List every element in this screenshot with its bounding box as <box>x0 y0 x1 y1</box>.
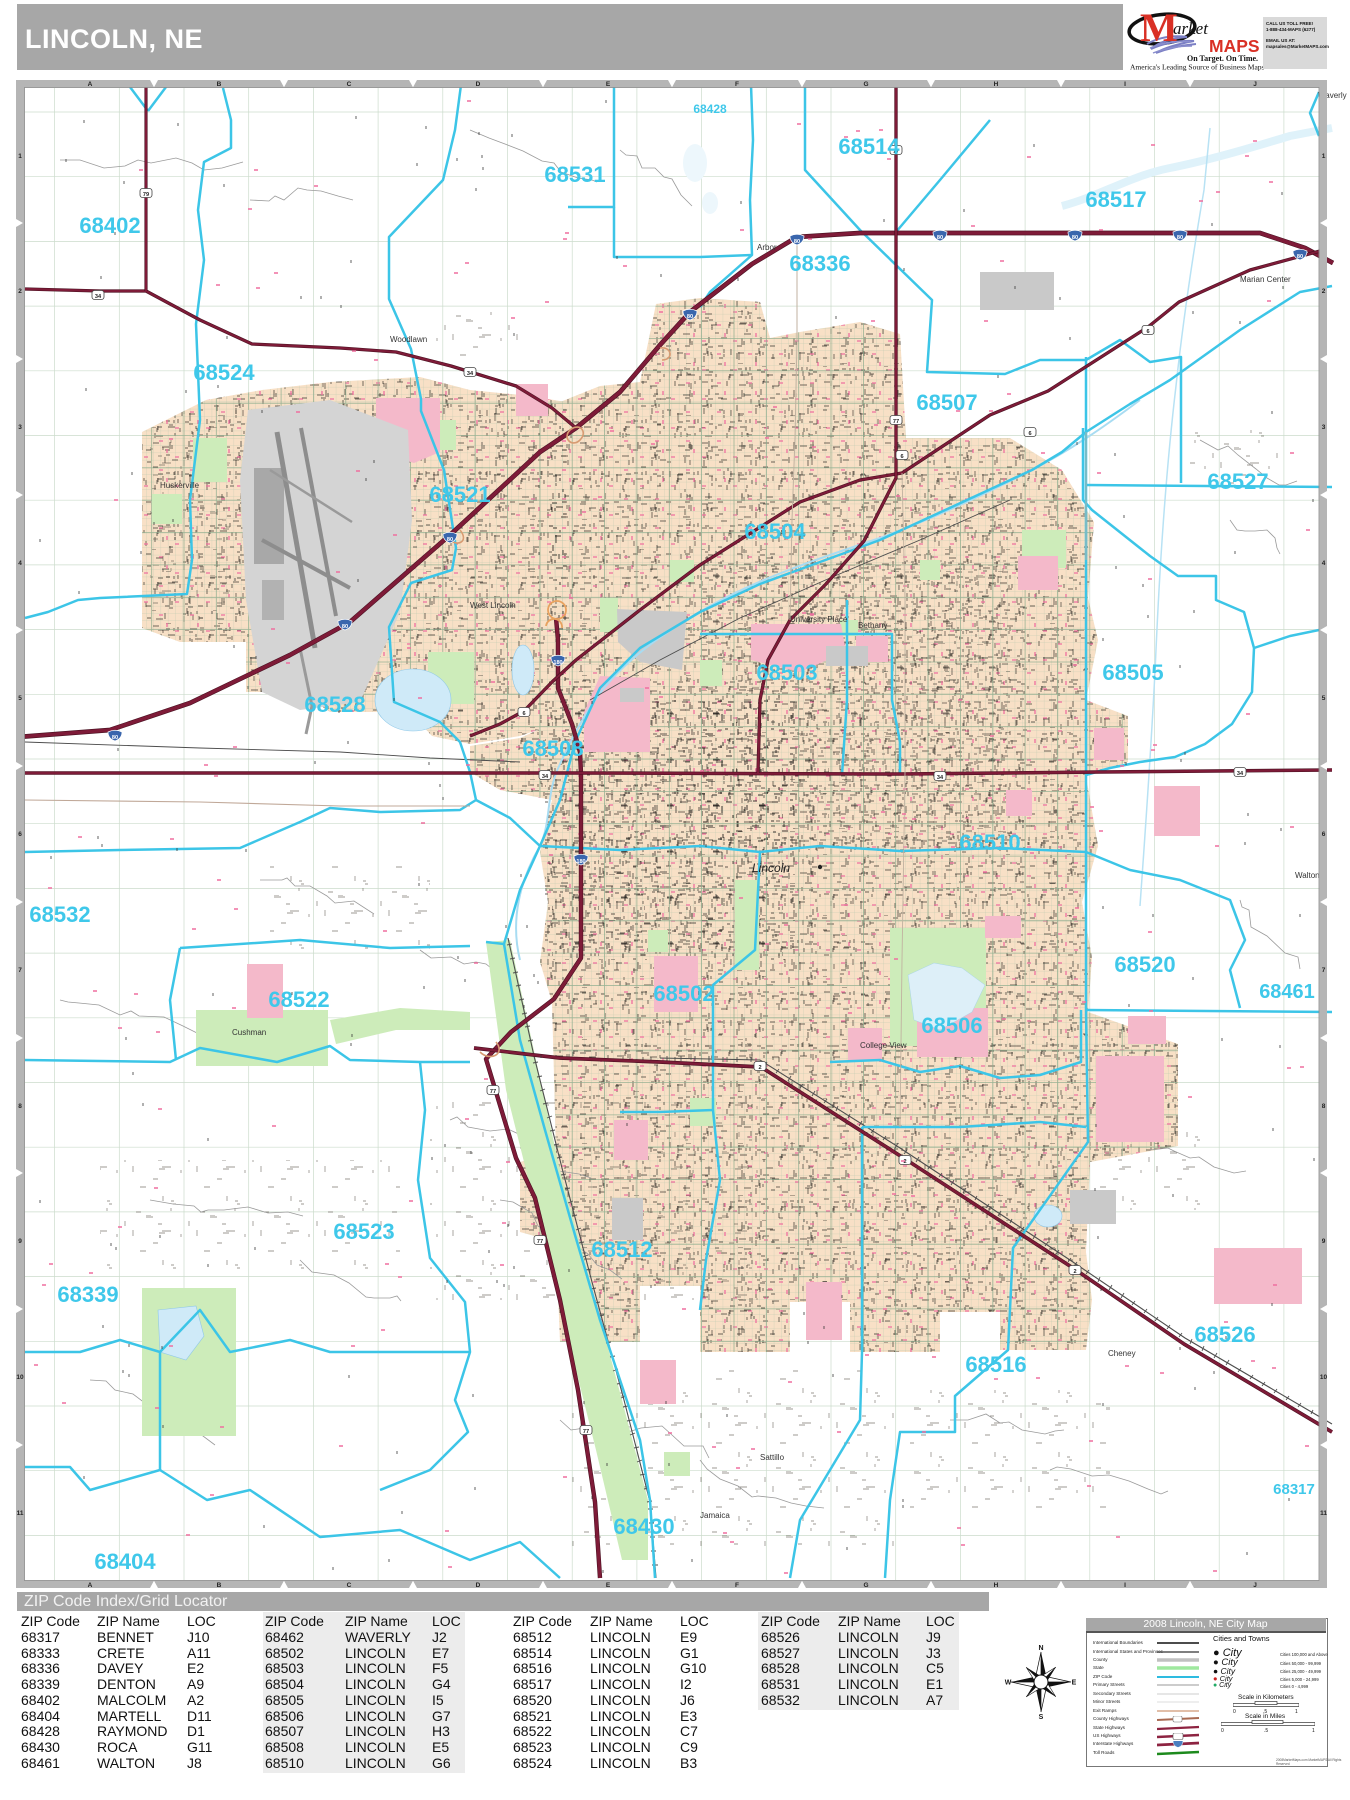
svg-text:6: 6 <box>1028 431 1031 437</box>
svg-text:G: G <box>863 1582 868 1589</box>
svg-text:8: 8 <box>18 1103 22 1110</box>
svg-text:68524: 68524 <box>193 360 255 385</box>
svg-text:68523: 68523 <box>333 1219 394 1244</box>
svg-text:77: 77 <box>583 1429 589 1435</box>
svg-text:4: 4 <box>1322 560 1326 567</box>
svg-text:7: 7 <box>1322 967 1326 974</box>
svg-text:5: 5 <box>1322 695 1326 702</box>
svg-text:F: F <box>735 81 739 88</box>
svg-text:68514: 68514 <box>838 134 900 159</box>
svg-text:34: 34 <box>937 775 944 781</box>
svg-text:8: 8 <box>1322 1103 1326 1110</box>
svg-text:68531: 68531 <box>544 162 605 187</box>
svg-text:68404: 68404 <box>94 1549 156 1574</box>
svg-text:6: 6 <box>1146 329 1149 335</box>
svg-text:68521: 68521 <box>429 482 490 507</box>
svg-text:F: F <box>735 1582 739 1589</box>
svg-text:11: 11 <box>17 1510 24 1517</box>
svg-text:68532: 68532 <box>29 902 90 927</box>
svg-text:C: C <box>347 81 352 88</box>
svg-text:68503: 68503 <box>756 660 817 685</box>
svg-text:68517: 68517 <box>1085 187 1146 212</box>
svg-text:80: 80 <box>112 735 118 741</box>
svg-text:6: 6 <box>18 831 22 838</box>
svg-text:A: A <box>88 1582 93 1589</box>
svg-text:68520: 68520 <box>1114 952 1175 977</box>
svg-text:E: E <box>1072 1680 1077 1687</box>
svg-text:2: 2 <box>1073 1269 1076 1275</box>
svg-text:2: 2 <box>758 1065 761 1071</box>
svg-text:68317: 68317 <box>1273 1481 1315 1498</box>
svg-text:D: D <box>476 1582 481 1589</box>
svg-text:West Lincoln: West Lincoln <box>470 601 516 610</box>
svg-text:34: 34 <box>467 371 474 377</box>
svg-text:Cheney: Cheney <box>1108 1349 1136 1358</box>
svg-text:80: 80 <box>687 314 693 320</box>
svg-text:4: 4 <box>18 560 22 567</box>
svg-text:68522: 68522 <box>268 987 329 1012</box>
svg-text:3: 3 <box>18 424 22 431</box>
svg-text:I: I <box>1124 81 1126 88</box>
svg-text:180: 180 <box>576 859 585 865</box>
svg-text:Lincoln: Lincoln <box>752 861 790 875</box>
svg-text:68506: 68506 <box>921 1013 982 1038</box>
svg-text:J: J <box>1253 1582 1257 1589</box>
svg-text:34: 34 <box>542 774 549 780</box>
svg-text:E: E <box>606 81 611 88</box>
svg-text:D: D <box>476 81 481 88</box>
svg-text:68336: 68336 <box>789 251 850 276</box>
svg-text:79: 79 <box>143 192 149 198</box>
svg-text:80: 80 <box>447 537 453 543</box>
svg-text:J: J <box>1253 81 1257 88</box>
svg-text:6: 6 <box>1322 831 1326 838</box>
svg-text:77: 77 <box>490 1089 496 1095</box>
svg-text:68461: 68461 <box>1259 981 1315 1003</box>
svg-text:H: H <box>994 81 999 88</box>
svg-text:77: 77 <box>893 419 899 425</box>
svg-text:68502: 68502 <box>653 981 714 1006</box>
svg-text:2: 2 <box>903 1159 906 1165</box>
svg-text:E: E <box>606 1582 611 1589</box>
svg-text:9: 9 <box>1322 1238 1326 1245</box>
svg-text:Cushman: Cushman <box>232 1028 266 1037</box>
svg-text:9: 9 <box>18 1238 22 1245</box>
svg-text:10: 10 <box>16 1374 24 1381</box>
svg-text:180: 180 <box>553 660 562 666</box>
svg-text:Jamaica: Jamaica <box>700 1511 730 1520</box>
svg-text:Huskerville: Huskerville <box>160 481 200 490</box>
svg-text:68339: 68339 <box>57 1282 118 1307</box>
svg-text:6: 6 <box>900 454 903 460</box>
svg-text:80: 80 <box>342 624 348 630</box>
svg-text:2: 2 <box>18 288 22 295</box>
svg-text:11: 11 <box>1320 1510 1327 1517</box>
svg-text:68504: 68504 <box>744 519 806 544</box>
svg-text:B: B <box>217 81 222 88</box>
svg-text:A: A <box>88 81 93 88</box>
svg-text:7: 7 <box>18 967 22 974</box>
svg-text:S: S <box>1039 1714 1044 1720</box>
svg-text:68505: 68505 <box>1102 660 1163 685</box>
svg-text:80: 80 <box>937 235 943 241</box>
svg-text:W: W <box>1005 1680 1012 1687</box>
svg-text:68526: 68526 <box>1194 1322 1255 1347</box>
svg-text:68527: 68527 <box>1207 469 1268 494</box>
svg-text:University Place: University Place <box>790 615 848 624</box>
svg-text:68507: 68507 <box>916 390 977 415</box>
svg-text:College View: College View <box>860 1041 907 1050</box>
svg-text:Woodlawn: Woodlawn <box>390 335 427 344</box>
svg-text:H: H <box>994 1582 999 1589</box>
svg-text:N: N <box>1038 1645 1043 1652</box>
svg-text:80: 80 <box>1177 235 1183 241</box>
svg-text:34: 34 <box>95 294 102 300</box>
svg-text:1: 1 <box>18 153 22 160</box>
svg-text:68516: 68516 <box>965 1352 1026 1377</box>
svg-text:68430: 68430 <box>613 1514 674 1539</box>
svg-text:I: I <box>1124 1582 1126 1589</box>
svg-text:3: 3 <box>1322 424 1326 431</box>
svg-text:68512: 68512 <box>591 1237 652 1262</box>
svg-text:77: 77 <box>537 1239 543 1245</box>
svg-text:5: 5 <box>18 695 22 702</box>
svg-text:1: 1 <box>1322 153 1326 160</box>
svg-text:68428: 68428 <box>693 102 727 116</box>
svg-text:2: 2 <box>1322 288 1326 295</box>
svg-text:68402: 68402 <box>79 213 140 238</box>
svg-text:80: 80 <box>794 239 800 245</box>
svg-text:C: C <box>347 1582 352 1589</box>
svg-text:Marian Center: Marian Center <box>1240 275 1291 284</box>
svg-text:6: 6 <box>522 711 525 717</box>
svg-text:80: 80 <box>1297 254 1303 260</box>
svg-text:68510: 68510 <box>959 830 1020 855</box>
svg-text:Arbor: Arbor <box>757 243 777 252</box>
svg-text:68528: 68528 <box>304 692 365 717</box>
svg-text:G: G <box>863 81 868 88</box>
svg-text:10: 10 <box>1320 1374 1328 1381</box>
svg-text:34: 34 <box>1237 771 1244 777</box>
svg-text:Walton: Walton <box>1295 871 1320 880</box>
svg-text:Sattillo: Sattillo <box>760 1453 785 1462</box>
svg-text:Bethany: Bethany <box>858 621 887 630</box>
svg-text:B: B <box>217 1582 222 1589</box>
svg-text:80: 80 <box>1072 235 1078 241</box>
svg-text:68508: 68508 <box>522 736 583 761</box>
